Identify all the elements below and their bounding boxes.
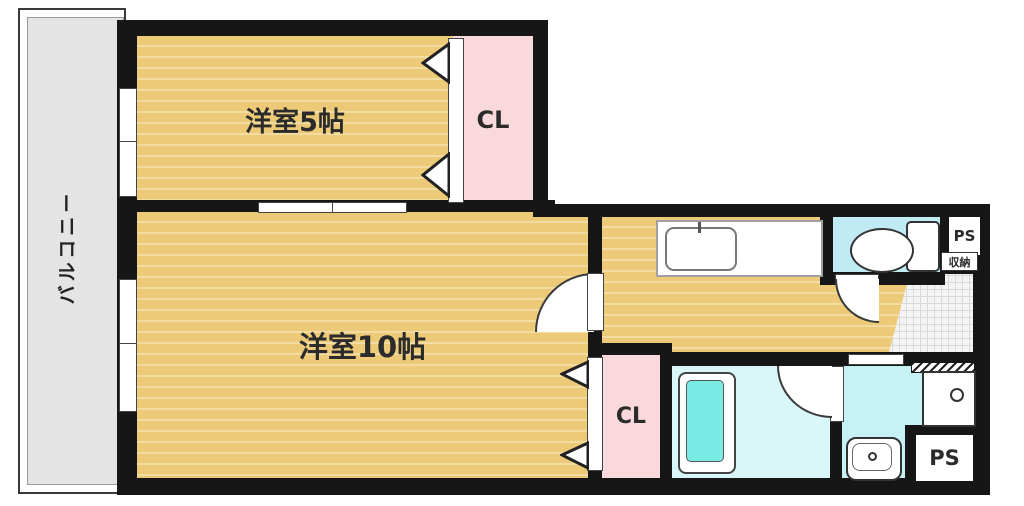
pipe-space-bottom-label: PS	[929, 446, 960, 470]
floor-plan: バルコニー	[0, 0, 1024, 506]
pipe-space-bottom: PS	[912, 431, 977, 485]
pipe-space-top-label: PS	[954, 227, 976, 245]
kitchen-sink	[665, 227, 737, 271]
closet-bottom-label: CL	[602, 355, 660, 478]
wall-closet-top-right	[533, 20, 548, 212]
balcony-label: バルコニー	[53, 190, 80, 305]
faucet-icon	[698, 222, 701, 233]
window-room5-upper	[119, 88, 137, 144]
storage-chip: 収納	[941, 252, 978, 271]
storage-label: 収納	[949, 254, 971, 270]
door-leaf-room10	[587, 273, 604, 331]
window-room10-upper	[119, 279, 137, 346]
door-gap-washroom	[848, 354, 904, 365]
washing-machine-pan	[922, 371, 976, 427]
room10-label: 洋室10帖	[137, 212, 588, 478]
window-room10-lower	[119, 343, 137, 412]
drain-icon	[950, 388, 964, 402]
window-room5-lower	[119, 141, 137, 197]
bathtub-inner	[686, 380, 724, 462]
room5-label: 洋室5帖	[137, 36, 453, 202]
toilet-icon	[850, 228, 914, 273]
wall-closet-bath-divider	[660, 352, 672, 478]
door-gap-bath	[830, 366, 844, 422]
basin-drain-icon	[868, 452, 877, 461]
closet-top-label: CL	[453, 36, 533, 204]
wall-top-room5	[117, 20, 548, 36]
closet-bottom-door-line	[587, 357, 603, 471]
